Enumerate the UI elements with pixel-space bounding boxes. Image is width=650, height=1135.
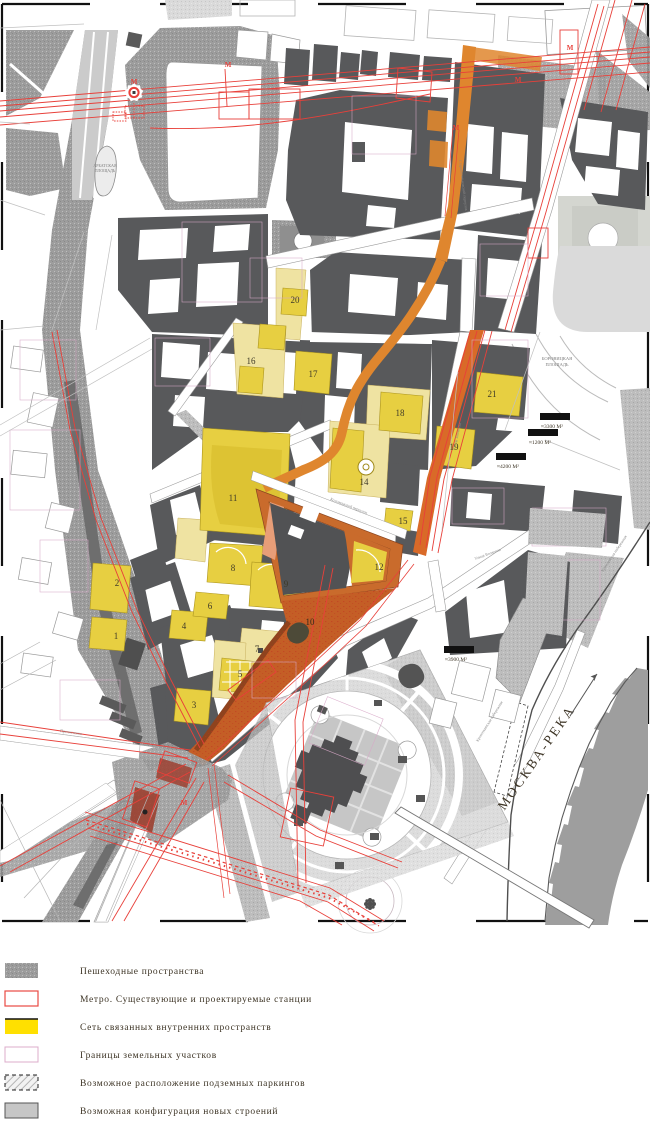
svg-text:10: 10	[306, 617, 316, 627]
svg-text:21: 21	[488, 389, 497, 399]
svg-text:8: 8	[231, 563, 236, 573]
svg-text:5: 5	[238, 669, 243, 679]
svg-text:≈1200 М²: ≈1200 М²	[529, 440, 551, 446]
svg-text:М: М	[131, 78, 138, 86]
svg-text:Метро. Существующие и проектир: Метро. Существующие и проектируемые стан…	[80, 995, 312, 1005]
svg-text:Возможная конфигурация новых с: Возможная конфигурация новых строений	[80, 1106, 278, 1117]
svg-text:15: 15	[399, 516, 409, 526]
svg-text:3: 3	[192, 700, 197, 710]
svg-text:Возможное расположение подземн: Возможное расположение подземных паркинг…	[80, 1079, 305, 1089]
svg-text:14: 14	[360, 477, 370, 487]
svg-text:М: М	[453, 124, 460, 132]
svg-text:≈4200 М²: ≈4200 М²	[497, 464, 519, 470]
svg-text:2: 2	[115, 578, 120, 588]
svg-text:≈3900 М²: ≈3900 М²	[445, 657, 467, 663]
svg-text:≈3300 М²: ≈3300 М²	[541, 424, 563, 430]
svg-text:ПЛОЩАДЬ: ПЛОЩАДЬ	[546, 362, 569, 367]
svg-text:11: 11	[229, 493, 238, 503]
svg-text:9: 9	[284, 579, 289, 589]
svg-text:БОРОВИЦКАЯ: БОРОВИЦКАЯ	[542, 356, 572, 361]
svg-text:7: 7	[255, 644, 260, 654]
svg-text:М: М	[225, 61, 232, 69]
svg-text:Пешеходные пространства: Пешеходные пространства	[80, 967, 204, 977]
svg-text:4: 4	[182, 621, 187, 631]
svg-text:18: 18	[396, 408, 406, 418]
svg-text:ПЛОЩАДЬ: ПЛОЩАДЬ	[95, 168, 116, 173]
svg-text:20: 20	[291, 295, 301, 305]
svg-text:М: М	[567, 44, 574, 52]
svg-text:6: 6	[208, 601, 213, 611]
svg-text:Сеть связанных внутренних прос: Сеть связанных внутренних пространств	[80, 1023, 271, 1033]
svg-text:М: М	[515, 76, 522, 84]
svg-text:12: 12	[375, 562, 384, 572]
svg-text:1: 1	[114, 631, 119, 641]
svg-text:М: М	[181, 799, 188, 807]
svg-text:Границы земельных участков: Границы земельных участков	[80, 1051, 217, 1061]
svg-text:16: 16	[247, 356, 257, 366]
svg-text:17: 17	[309, 369, 319, 379]
